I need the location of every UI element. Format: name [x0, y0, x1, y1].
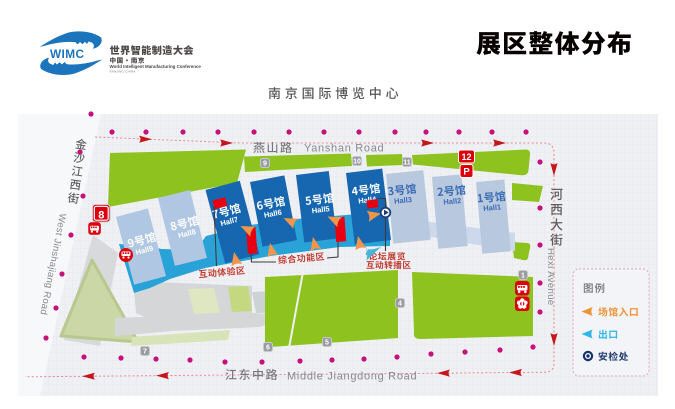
svg-text:10: 10 — [353, 159, 361, 166]
svg-text:WIMC: WIMC — [50, 47, 84, 61]
svg-text:Hall1: Hall1 — [483, 202, 502, 213]
svg-text:1: 1 — [521, 273, 525, 280]
svg-text:NANJING·CHINA: NANJING·CHINA — [110, 69, 136, 73]
svg-text:9: 9 — [263, 161, 267, 168]
svg-text:4: 4 — [398, 301, 402, 308]
svg-text:Hall2: Hall2 — [443, 196, 462, 207]
svg-text:8: 8 — [98, 209, 104, 221]
svg-text:Middle Jiangdong Road: Middle Jiangdong Road — [287, 371, 417, 383]
svg-text:Hall3: Hall3 — [394, 195, 413, 206]
svg-text:7: 7 — [143, 349, 147, 356]
svg-text:P: P — [463, 167, 470, 178]
svg-text:11: 11 — [403, 160, 411, 167]
svg-text:12: 12 — [461, 152, 471, 162]
svg-text:Hexi Avenue: Hexi Avenue — [545, 248, 556, 306]
svg-text:5: 5 — [325, 340, 329, 347]
svg-text:Yanshan Road: Yanshan Road — [304, 143, 384, 155]
svg-text:6: 6 — [266, 345, 270, 352]
